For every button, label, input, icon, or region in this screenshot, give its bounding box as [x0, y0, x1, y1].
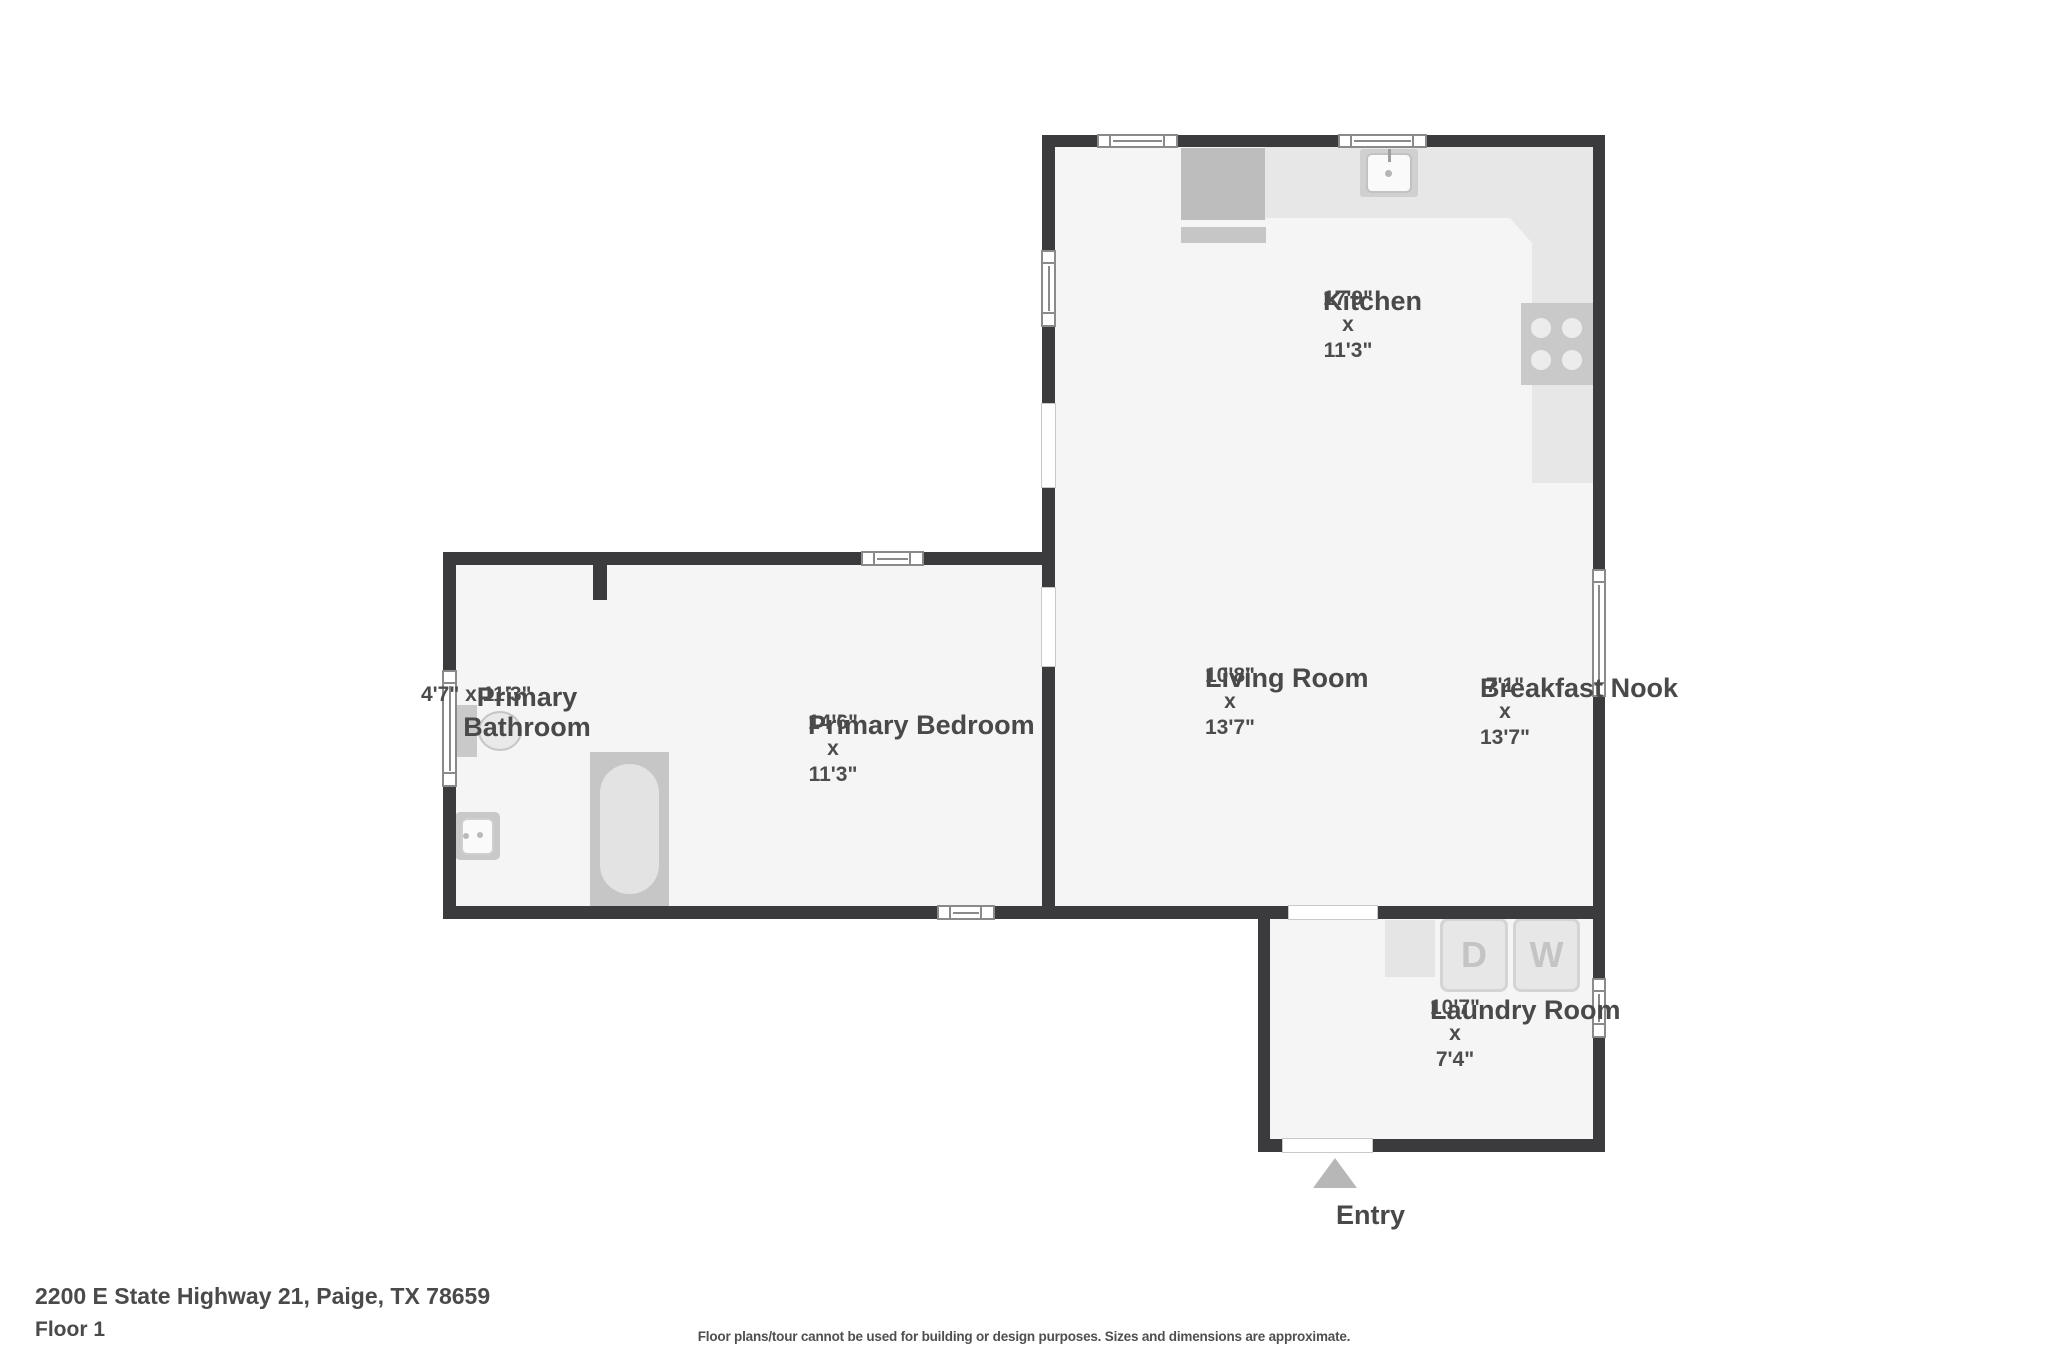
- window: [1041, 250, 1056, 327]
- bathtub-basin-icon: [600, 764, 659, 894]
- door-bedroom-living: [1041, 587, 1056, 667]
- room-dimensions: 10'7" x 7'4": [1430, 995, 1480, 1073]
- opening-living-left: [1041, 403, 1056, 488]
- wall-bedroom-top: [443, 552, 1055, 565]
- floor-plan-canvas: D W Kitchen 17'9" x 11'3" Primary Bathro…: [0, 0, 2048, 1365]
- room-dimensions: 14'6" x 11'3": [808, 710, 858, 788]
- washer-icon: W: [1513, 918, 1580, 992]
- wall-bottom: [443, 906, 1605, 919]
- room-dimensions: 4'7" x 11'3": [421, 682, 532, 708]
- stove-burner-icon: [1531, 318, 1551, 338]
- kitchen-living-floor: [1048, 141, 1600, 912]
- stove-icon: [1521, 303, 1593, 385]
- room-dimensions: 7'1" x 13'7": [1480, 673, 1530, 751]
- window: [1097, 134, 1178, 148]
- stove-burner-icon: [1531, 350, 1551, 370]
- dryer-letter: D: [1461, 934, 1487, 976]
- disclaimer-text: Floor plans/tour cannot be used for buil…: [0, 1329, 2048, 1344]
- room-dimensions: 10'8" x 13'7": [1205, 663, 1255, 741]
- laundry-counter-icon: [1385, 920, 1435, 977]
- entry-text: Entry: [1336, 1200, 1405, 1230]
- door-entry: [1282, 1138, 1373, 1153]
- window: [861, 551, 924, 566]
- kitchen-sink-drain-icon: [1385, 170, 1392, 177]
- room-dimensions: 17'9" x 11'3": [1323, 286, 1373, 364]
- bathroom-sink-handle-icon: [477, 832, 483, 838]
- window: [1338, 134, 1427, 148]
- door-living-laundry: [1288, 905, 1378, 920]
- entry-arrow-icon: [1313, 1158, 1357, 1188]
- kitchen-sink-faucet-icon: [1388, 149, 1391, 162]
- stove-burner-icon: [1562, 318, 1582, 338]
- window: [937, 905, 995, 920]
- washer-letter: W: [1530, 934, 1564, 976]
- refrigerator-handle-icon: [1181, 227, 1266, 243]
- stove-burner-icon: [1562, 350, 1582, 370]
- bathroom-sink-handle-icon: [463, 833, 469, 839]
- kitchen-counter-top-icon: [1265, 147, 1593, 218]
- wall-laundry-left: [1258, 906, 1270, 1152]
- wall-bathroom-stub: [593, 565, 607, 600]
- refrigerator-icon: [1181, 148, 1265, 220]
- address-text: 2200 E State Highway 21, Paige, TX 78659: [35, 1283, 490, 1310]
- dryer-icon: D: [1440, 918, 1508, 992]
